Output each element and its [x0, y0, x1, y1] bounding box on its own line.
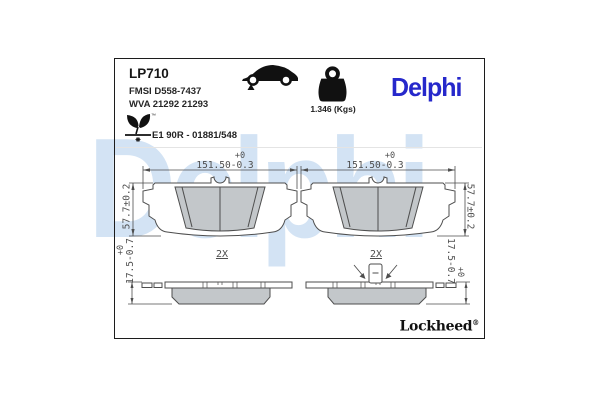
front-view-right [301, 166, 469, 236]
drawing-frame: LP710 FMSI D558-7437 WVA 21292 21293 1.3… [114, 58, 485, 339]
technical-drawings [115, 59, 483, 337]
quantity-label-left: 2X [210, 249, 234, 260]
thickness-dimension-left: +017.5-0.7 [117, 230, 135, 292]
wear-sensor [354, 264, 397, 283]
registered-mark: ® [472, 318, 479, 327]
height-dimension-right: 57.7±0.2 [466, 172, 475, 242]
width-dimension-right: +0151.50-0.3 [315, 152, 435, 170]
profile-view-left [128, 282, 292, 304]
front-view-left [129, 166, 297, 236]
brake-pad-datasheet: Delphi LP710 FMSI D558-7437 WVA 21292 21… [0, 0, 600, 400]
lockheed-wordmark: Lockheed® [400, 318, 480, 335]
width-dimension-left: +0151.50-0.3 [165, 152, 285, 170]
thickness-dimension-right: +017.5-0.7 [446, 230, 464, 292]
quantity-label-right: 2X [364, 249, 388, 260]
